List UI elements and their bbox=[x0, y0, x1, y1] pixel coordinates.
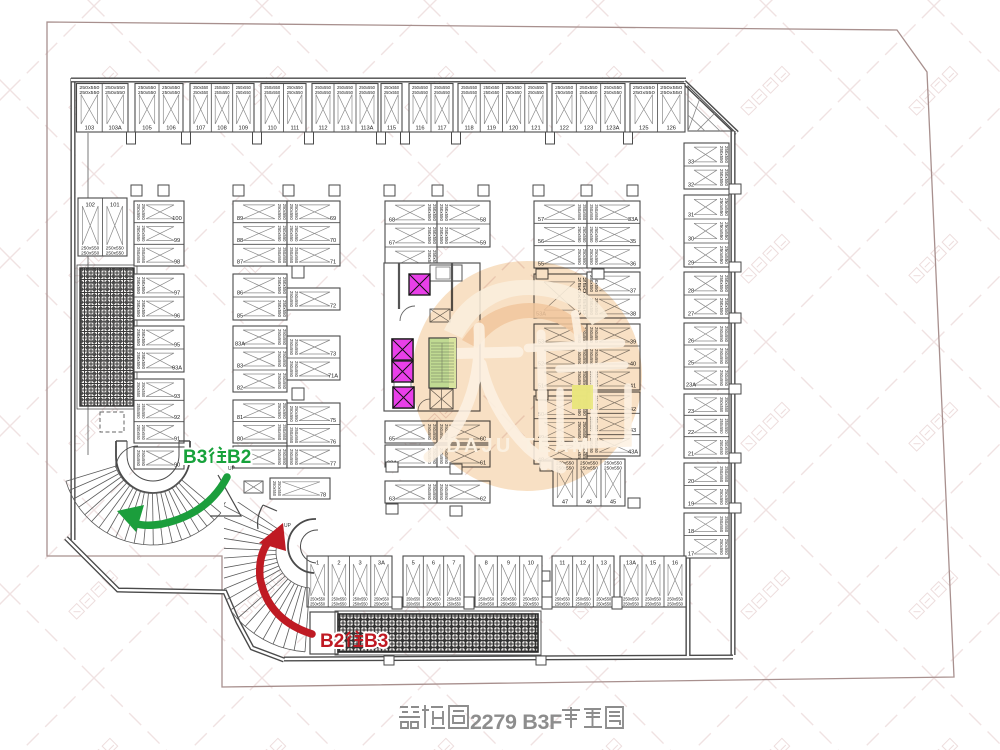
svg-text:250x550: 250x550 bbox=[294, 226, 299, 242]
svg-text:109: 109 bbox=[239, 126, 249, 132]
svg-text:250x550: 250x550 bbox=[645, 601, 661, 606]
svg-text:250x550: 250x550 bbox=[432, 204, 437, 221]
svg-text:82: 82 bbox=[237, 386, 243, 392]
svg-text:250x550: 250x550 bbox=[724, 222, 729, 241]
svg-text:250x550: 250x550 bbox=[277, 481, 282, 496]
svg-text:250x550: 250x550 bbox=[136, 382, 141, 397]
svg-text:27: 27 bbox=[688, 312, 694, 318]
svg-text:250x550: 250x550 bbox=[724, 516, 729, 532]
svg-text:250x550: 250x550 bbox=[719, 222, 724, 241]
svg-text:7: 7 bbox=[452, 561, 455, 567]
svg-text:250x550: 250x550 bbox=[724, 466, 729, 482]
svg-text:250x550: 250x550 bbox=[594, 227, 599, 243]
svg-text:98: 98 bbox=[174, 260, 180, 266]
svg-text:37: 37 bbox=[630, 289, 636, 295]
svg-text:19: 19 bbox=[688, 502, 694, 508]
svg-text:93: 93 bbox=[174, 394, 180, 400]
svg-text:250x550: 250x550 bbox=[719, 198, 724, 217]
svg-text:250x550: 250x550 bbox=[141, 277, 146, 294]
svg-text:250x550: 250x550 bbox=[294, 406, 299, 422]
svg-text:2: 2 bbox=[337, 561, 340, 567]
svg-text:250x550: 250x550 bbox=[337, 90, 353, 95]
svg-text:95: 95 bbox=[174, 343, 180, 349]
svg-text:B3: B3 bbox=[364, 631, 388, 652]
svg-text:113A: 113A bbox=[361, 126, 374, 132]
svg-text:B3: B3 bbox=[183, 447, 207, 468]
svg-text:250x550: 250x550 bbox=[141, 404, 146, 419]
svg-text:15: 15 bbox=[650, 561, 656, 567]
svg-text:250x550: 250x550 bbox=[81, 250, 100, 255]
svg-text:119: 119 bbox=[487, 126, 496, 132]
svg-text:250x550: 250x550 bbox=[141, 300, 146, 317]
svg-text:250x550: 250x550 bbox=[141, 247, 146, 263]
svg-text:250x550: 250x550 bbox=[719, 169, 724, 186]
svg-text:73: 73 bbox=[330, 352, 336, 358]
svg-text:1: 1 bbox=[316, 561, 319, 567]
svg-text:100: 100 bbox=[172, 216, 182, 222]
svg-text:250x550: 250x550 bbox=[719, 370, 724, 386]
svg-text:13A: 13A bbox=[626, 561, 636, 567]
svg-text:250x550: 250x550 bbox=[719, 298, 724, 315]
svg-text:250x550: 250x550 bbox=[105, 90, 126, 95]
svg-text:250x550: 250x550 bbox=[432, 484, 437, 500]
svg-text:250x550: 250x550 bbox=[594, 249, 599, 265]
svg-text:250x550: 250x550 bbox=[724, 298, 729, 315]
svg-text:103A: 103A bbox=[108, 126, 121, 132]
svg-text:81: 81 bbox=[237, 415, 243, 421]
svg-text:85: 85 bbox=[237, 314, 243, 320]
svg-text:250x550: 250x550 bbox=[277, 204, 282, 220]
svg-text:250x550: 250x550 bbox=[604, 90, 623, 95]
svg-text:33A: 33A bbox=[628, 217, 638, 223]
svg-text:250x550: 250x550 bbox=[724, 539, 729, 555]
svg-text:11: 11 bbox=[559, 561, 565, 567]
svg-text:250x550: 250x550 bbox=[724, 198, 729, 217]
svg-text:250x550: 250x550 bbox=[623, 601, 639, 606]
svg-text:250x550: 250x550 bbox=[439, 204, 444, 221]
svg-text:250x550: 250x550 bbox=[277, 449, 282, 465]
svg-text:250x550: 250x550 bbox=[331, 601, 346, 606]
svg-text:250x550: 250x550 bbox=[719, 246, 724, 265]
svg-text:250x550: 250x550 bbox=[594, 204, 599, 220]
svg-text:250x550: 250x550 bbox=[277, 247, 282, 263]
svg-text:8: 8 bbox=[485, 561, 488, 567]
svg-text:5: 5 bbox=[412, 561, 415, 567]
svg-text:25: 25 bbox=[688, 361, 694, 367]
svg-text:250x550: 250x550 bbox=[79, 90, 100, 95]
svg-text:250x550: 250x550 bbox=[439, 484, 444, 500]
svg-text:250x550: 250x550 bbox=[432, 227, 437, 244]
svg-text:250x550: 250x550 bbox=[501, 601, 517, 606]
svg-text:30: 30 bbox=[688, 237, 694, 243]
svg-text:250x550: 250x550 bbox=[193, 90, 208, 95]
svg-text:16: 16 bbox=[672, 561, 678, 567]
svg-text:12: 12 bbox=[580, 561, 586, 567]
svg-text:38: 38 bbox=[630, 312, 636, 318]
svg-text:250x550: 250x550 bbox=[434, 90, 450, 95]
svg-text:250x550: 250x550 bbox=[162, 90, 181, 95]
svg-text:105: 105 bbox=[142, 126, 152, 132]
svg-text:250x550: 250x550 bbox=[667, 601, 683, 606]
svg-text:250x550: 250x550 bbox=[724, 348, 729, 364]
svg-text:250x550: 250x550 bbox=[282, 247, 287, 263]
svg-text:250x550: 250x550 bbox=[277, 226, 282, 242]
svg-text:97: 97 bbox=[174, 291, 180, 297]
svg-text:117: 117 bbox=[437, 126, 446, 132]
svg-text:83: 83 bbox=[237, 364, 243, 370]
svg-text:250x550: 250x550 bbox=[719, 419, 724, 434]
svg-text:250x550: 250x550 bbox=[264, 90, 280, 95]
svg-text:250x550: 250x550 bbox=[582, 249, 587, 265]
svg-text:59: 59 bbox=[480, 241, 486, 247]
svg-text:250x550: 250x550 bbox=[136, 277, 141, 294]
svg-text:250x550: 250x550 bbox=[576, 601, 591, 606]
svg-text:250x550: 250x550 bbox=[478, 601, 494, 606]
svg-text:250x550: 250x550 bbox=[439, 227, 444, 244]
svg-text:35: 35 bbox=[630, 239, 636, 245]
svg-text:32: 32 bbox=[688, 183, 694, 189]
svg-text:250x550: 250x550 bbox=[719, 440, 724, 455]
svg-text:250x550: 250x550 bbox=[633, 90, 656, 95]
svg-text:96: 96 bbox=[174, 314, 180, 320]
svg-text:250x550: 250x550 bbox=[427, 204, 432, 221]
svg-text:250x550: 250x550 bbox=[577, 204, 582, 220]
svg-text:89: 89 bbox=[237, 216, 243, 222]
svg-text:123A: 123A bbox=[606, 126, 619, 132]
svg-text:250x550: 250x550 bbox=[523, 601, 539, 606]
svg-text:250x550: 250x550 bbox=[282, 424, 287, 440]
svg-text:250x550: 250x550 bbox=[589, 249, 594, 265]
svg-text:118: 118 bbox=[465, 126, 474, 132]
svg-text:250x550: 250x550 bbox=[604, 465, 623, 470]
svg-text:121: 121 bbox=[531, 126, 541, 132]
svg-text:250x550: 250x550 bbox=[719, 326, 724, 342]
svg-text:250x550: 250x550 bbox=[724, 275, 729, 292]
svg-text:69: 69 bbox=[330, 216, 336, 222]
svg-text:106: 106 bbox=[166, 126, 176, 132]
svg-text:18: 18 bbox=[688, 529, 694, 535]
svg-text:93A: 93A bbox=[172, 366, 182, 372]
svg-text:250x550: 250x550 bbox=[374, 601, 389, 606]
svg-text:250x550: 250x550 bbox=[282, 351, 287, 367]
svg-text:3: 3 bbox=[359, 561, 362, 567]
svg-text:122: 122 bbox=[559, 126, 569, 132]
svg-text:33: 33 bbox=[688, 160, 694, 166]
svg-text:43A: 43A bbox=[628, 450, 638, 456]
svg-text:250x550: 250x550 bbox=[141, 329, 146, 346]
svg-text:250x550: 250x550 bbox=[555, 601, 570, 606]
svg-text:10: 10 bbox=[528, 561, 534, 567]
svg-text:250x550: 250x550 bbox=[289, 339, 294, 355]
svg-text:250x550: 250x550 bbox=[461, 90, 477, 95]
svg-text:250x550: 250x550 bbox=[136, 404, 141, 419]
svg-text:250x550: 250x550 bbox=[444, 227, 449, 244]
svg-text:250x550: 250x550 bbox=[580, 90, 599, 95]
svg-text:45: 45 bbox=[610, 500, 616, 506]
svg-text:116: 116 bbox=[415, 126, 424, 132]
svg-text:126: 126 bbox=[666, 126, 676, 132]
svg-text:23: 23 bbox=[688, 409, 694, 415]
svg-text:250x550: 250x550 bbox=[282, 204, 287, 220]
svg-text:63: 63 bbox=[389, 497, 395, 503]
svg-text:250x550: 250x550 bbox=[136, 450, 141, 466]
svg-text:108: 108 bbox=[217, 126, 227, 132]
svg-text:250x550: 250x550 bbox=[719, 489, 724, 505]
svg-text:250x550: 250x550 bbox=[136, 329, 141, 346]
svg-text:250x550: 250x550 bbox=[577, 249, 582, 265]
svg-text:250x550: 250x550 bbox=[289, 427, 294, 443]
svg-text:250x550: 250x550 bbox=[294, 449, 299, 465]
svg-text:77: 77 bbox=[330, 462, 336, 468]
svg-text:250x550: 250x550 bbox=[315, 90, 331, 95]
svg-text:250x550: 250x550 bbox=[447, 601, 461, 606]
svg-text:57: 57 bbox=[538, 217, 544, 223]
svg-text:111: 111 bbox=[290, 126, 299, 132]
svg-text:88: 88 bbox=[237, 238, 243, 244]
svg-text:250x550: 250x550 bbox=[506, 90, 522, 95]
svg-text:250x550: 250x550 bbox=[136, 204, 141, 220]
svg-text:68: 68 bbox=[389, 218, 395, 224]
svg-text:47: 47 bbox=[562, 500, 568, 506]
svg-text:23A: 23A bbox=[686, 383, 696, 389]
svg-text:250x550: 250x550 bbox=[724, 146, 729, 163]
svg-text:250x550: 250x550 bbox=[719, 539, 724, 555]
svg-text:17: 17 bbox=[688, 552, 694, 558]
svg-text:250x550: 250x550 bbox=[294, 247, 299, 263]
svg-text:250x550: 250x550 bbox=[282, 373, 287, 389]
svg-text:250x550: 250x550 bbox=[136, 226, 141, 242]
svg-text:31: 31 bbox=[688, 213, 694, 219]
svg-text:250x550: 250x550 bbox=[141, 382, 146, 397]
svg-text:62: 62 bbox=[480, 497, 486, 503]
svg-text:250x550: 250x550 bbox=[141, 226, 146, 242]
svg-text:250x550: 250x550 bbox=[724, 169, 729, 186]
svg-text:250x550: 250x550 bbox=[282, 403, 287, 419]
svg-text:13: 13 bbox=[601, 561, 607, 567]
svg-text:250x550: 250x550 bbox=[136, 352, 141, 369]
svg-text:250x550: 250x550 bbox=[136, 247, 141, 263]
svg-text:99: 99 bbox=[174, 238, 180, 244]
svg-text:250x550: 250x550 bbox=[384, 90, 399, 95]
svg-text:250x550: 250x550 bbox=[724, 397, 729, 412]
svg-text:250x550: 250x550 bbox=[582, 204, 587, 220]
svg-text:250x550: 250x550 bbox=[289, 361, 294, 377]
svg-text:250x550: 250x550 bbox=[719, 516, 724, 532]
svg-text:250x550: 250x550 bbox=[719, 348, 724, 364]
svg-text:250x550: 250x550 bbox=[724, 489, 729, 505]
svg-text:115: 115 bbox=[387, 126, 396, 132]
svg-text:DAJU TEAM: DAJU TEAM bbox=[446, 435, 591, 457]
svg-text:250x550: 250x550 bbox=[282, 226, 287, 242]
svg-text:250x550: 250x550 bbox=[141, 425, 146, 440]
svg-text:250x550: 250x550 bbox=[294, 204, 299, 220]
svg-text:B2: B2 bbox=[320, 631, 344, 652]
svg-text:250x550: 250x550 bbox=[289, 449, 294, 465]
svg-text:250x550: 250x550 bbox=[277, 424, 282, 440]
svg-text:83A: 83A bbox=[235, 342, 245, 348]
svg-text:9: 9 bbox=[507, 561, 510, 567]
svg-text:80: 80 bbox=[237, 437, 243, 443]
svg-text:250x550: 250x550 bbox=[236, 90, 251, 95]
svg-text:20: 20 bbox=[688, 479, 694, 485]
svg-text:250x550: 250x550 bbox=[277, 329, 282, 345]
svg-text:56: 56 bbox=[538, 239, 544, 245]
svg-text:250x550: 250x550 bbox=[289, 204, 294, 220]
svg-text:UP: UP bbox=[284, 523, 292, 529]
svg-text:250x550: 250x550 bbox=[412, 90, 428, 95]
svg-text:102: 102 bbox=[85, 203, 95, 209]
svg-text:250x550: 250x550 bbox=[141, 450, 146, 466]
svg-text:250x550: 250x550 bbox=[444, 204, 449, 221]
svg-text:250x550: 250x550 bbox=[596, 601, 611, 606]
svg-text:21: 21 bbox=[688, 452, 694, 458]
svg-text:250x550: 250x550 bbox=[724, 440, 729, 455]
svg-text:250x550: 250x550 bbox=[528, 90, 544, 95]
svg-text:250x550: 250x550 bbox=[719, 466, 724, 482]
svg-text:250x550: 250x550 bbox=[589, 204, 594, 220]
svg-text:250x550: 250x550 bbox=[719, 397, 724, 412]
svg-text:71: 71 bbox=[330, 260, 336, 266]
svg-text:86: 86 bbox=[237, 291, 243, 297]
svg-text:250x550: 250x550 bbox=[724, 246, 729, 265]
svg-text:250x550: 250x550 bbox=[724, 419, 729, 434]
svg-text:3A: 3A bbox=[378, 561, 385, 567]
svg-text:75: 75 bbox=[330, 418, 336, 424]
svg-text:250x550: 250x550 bbox=[294, 339, 299, 355]
svg-text:250x550: 250x550 bbox=[287, 90, 303, 95]
svg-text:250x550: 250x550 bbox=[141, 352, 146, 369]
svg-text:250x550: 250x550 bbox=[427, 227, 432, 244]
svg-text:71A: 71A bbox=[328, 374, 338, 380]
svg-text:250x550: 250x550 bbox=[660, 90, 683, 95]
svg-text:65: 65 bbox=[389, 437, 395, 443]
svg-text:26: 26 bbox=[688, 339, 694, 345]
svg-text:87: 87 bbox=[237, 260, 243, 266]
svg-text:250x550: 250x550 bbox=[136, 300, 141, 317]
svg-text:250x550: 250x550 bbox=[282, 449, 287, 465]
svg-text:250x550: 250x550 bbox=[282, 300, 287, 317]
svg-text:92: 92 bbox=[174, 415, 180, 421]
svg-text:250x550: 250x550 bbox=[589, 227, 594, 243]
svg-text:125: 125 bbox=[639, 126, 649, 132]
svg-text:113: 113 bbox=[340, 126, 349, 132]
svg-text:22: 22 bbox=[688, 430, 694, 436]
svg-text:58: 58 bbox=[480, 218, 486, 224]
svg-text:67: 67 bbox=[389, 241, 395, 247]
svg-text:250x550: 250x550 bbox=[289, 226, 294, 242]
svg-text:250x550: 250x550 bbox=[289, 247, 294, 263]
svg-text:28: 28 bbox=[688, 289, 694, 295]
svg-text:250x550: 250x550 bbox=[294, 427, 299, 443]
svg-text:120: 120 bbox=[509, 126, 519, 132]
svg-text:250x550: 250x550 bbox=[427, 484, 432, 500]
svg-text:250x550: 250x550 bbox=[406, 601, 420, 606]
svg-text:250x550: 250x550 bbox=[719, 146, 724, 163]
svg-text:103: 103 bbox=[85, 126, 95, 132]
svg-text:250x550: 250x550 bbox=[136, 425, 141, 440]
svg-text:250x550: 250x550 bbox=[106, 250, 125, 255]
svg-text:250x550: 250x550 bbox=[724, 326, 729, 342]
svg-text:250x550: 250x550 bbox=[582, 227, 587, 243]
svg-text:250x550: 250x550 bbox=[272, 481, 277, 496]
svg-text:46: 46 bbox=[586, 500, 592, 506]
svg-text:72: 72 bbox=[330, 304, 336, 310]
svg-text:250x550: 250x550 bbox=[359, 90, 375, 95]
svg-text:107: 107 bbox=[196, 126, 206, 132]
svg-text:250x550: 250x550 bbox=[282, 277, 287, 294]
svg-text:250x550: 250x550 bbox=[277, 300, 282, 317]
svg-text:250x550: 250x550 bbox=[724, 370, 729, 386]
svg-text:78: 78 bbox=[320, 493, 326, 499]
svg-text:250x550: 250x550 bbox=[277, 351, 282, 367]
svg-text:250x550: 250x550 bbox=[277, 373, 282, 389]
svg-text:250x550: 250x550 bbox=[294, 291, 299, 307]
svg-text:250x550: 250x550 bbox=[555, 90, 574, 95]
svg-text:250x550: 250x550 bbox=[138, 90, 157, 95]
svg-text:250x550: 250x550 bbox=[277, 277, 282, 294]
svg-text:250x550: 250x550 bbox=[277, 403, 282, 419]
svg-text:250x550: 250x550 bbox=[719, 275, 724, 292]
svg-text:250x550: 250x550 bbox=[294, 361, 299, 377]
svg-text:250x550: 250x550 bbox=[483, 90, 499, 95]
svg-text:250x550: 250x550 bbox=[577, 227, 582, 243]
svg-text:101: 101 bbox=[110, 203, 120, 209]
svg-text:70: 70 bbox=[330, 238, 336, 244]
svg-text:250x550: 250x550 bbox=[310, 601, 325, 606]
svg-text:250x550: 250x550 bbox=[427, 601, 441, 606]
svg-text:76: 76 bbox=[330, 440, 336, 446]
svg-text:B2: B2 bbox=[227, 447, 251, 468]
svg-text:250x550: 250x550 bbox=[444, 484, 449, 500]
svg-text:250x550: 250x550 bbox=[289, 406, 294, 422]
svg-text:250x550: 250x550 bbox=[353, 601, 368, 606]
svg-text:250x550: 250x550 bbox=[141, 204, 146, 220]
svg-text:250x550: 250x550 bbox=[282, 329, 287, 345]
svg-text:2279 B3F: 2279 B3F bbox=[470, 710, 562, 734]
svg-text:250x550: 250x550 bbox=[215, 90, 230, 95]
svg-text:29: 29 bbox=[688, 261, 694, 267]
svg-text:250x550: 250x550 bbox=[289, 291, 294, 307]
svg-text:6: 6 bbox=[432, 561, 435, 567]
svg-text:110: 110 bbox=[268, 126, 277, 132]
svg-text:112: 112 bbox=[318, 126, 327, 132]
svg-text:36: 36 bbox=[630, 262, 636, 268]
svg-text:123: 123 bbox=[584, 126, 594, 132]
